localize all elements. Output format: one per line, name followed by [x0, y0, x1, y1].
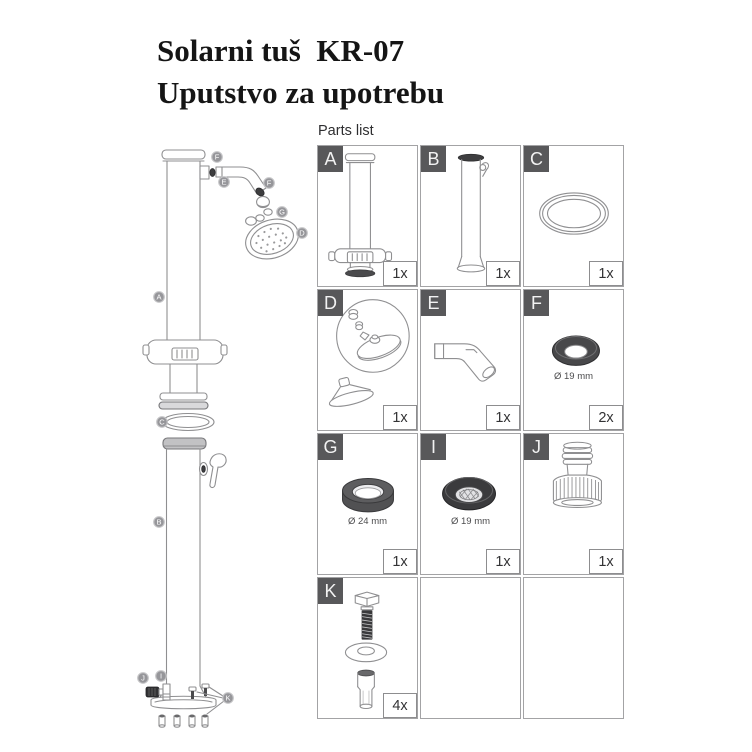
- svg-text:F: F: [267, 179, 272, 188]
- diagram-collar-nut: [143, 340, 227, 364]
- svg-text:E: E: [221, 178, 226, 187]
- part-qty: 1x: [383, 405, 417, 430]
- callout-g: G: [277, 207, 288, 218]
- part-tag: C: [524, 146, 549, 172]
- part-tag: K: [318, 578, 343, 604]
- callout-i: I: [156, 671, 167, 682]
- title-line-2: Uputstvo za upotrebu: [157, 75, 444, 110]
- svg-text:C: C: [159, 418, 165, 427]
- part-qty: 1x: [589, 261, 623, 286]
- svg-text:A: A: [156, 293, 161, 302]
- part-cell-e: E 1x: [420, 289, 521, 431]
- part-tag: A: [318, 146, 343, 172]
- part-cell-j: J 1x: [523, 433, 624, 575]
- svg-text:J: J: [141, 674, 145, 683]
- diagram-shower-head: [240, 213, 303, 266]
- svg-text:F: F: [215, 153, 220, 162]
- diagram-connector-stack: [256, 196, 272, 221]
- part-tag: I: [421, 434, 446, 460]
- part-cell-a: A 1x: [317, 145, 418, 287]
- part-cell-b: B 1x: [420, 145, 521, 287]
- part-qty: 4x: [383, 693, 417, 718]
- diagram-tube-a-bottom: [159, 364, 208, 409]
- parts-list-heading: Parts list: [318, 123, 374, 139]
- svg-text:B: B: [156, 518, 161, 527]
- part-tag: G: [318, 434, 343, 460]
- diagram-anchors: [159, 715, 208, 728]
- svg-text:K: K: [225, 694, 230, 703]
- part-cell-c: C 1x: [523, 145, 624, 287]
- part-cell-k: K: [317, 577, 418, 719]
- diagram-o-ring: [162, 414, 214, 431]
- empty-cell: [420, 577, 521, 719]
- exploded-diagram: F E F G D A C B J I K: [135, 146, 320, 746]
- part-tag: E: [421, 290, 446, 316]
- part-dimension: Ø 19 mm: [524, 371, 623, 382]
- part-dimension: Ø 19 mm: [421, 516, 520, 527]
- part-qty: 1x: [486, 405, 520, 430]
- callout-e: E: [219, 177, 230, 188]
- page-title: Solarni tuš KR-07Uputstvo za upotrebu: [157, 30, 444, 114]
- callout-a: A: [154, 292, 165, 303]
- part-qty: 1x: [486, 549, 520, 574]
- part-tag: B: [421, 146, 446, 172]
- callout-f1: F: [212, 152, 223, 163]
- part-tag: D: [318, 290, 343, 316]
- part-tag: F: [524, 290, 549, 316]
- part-qty: 1x: [486, 261, 520, 286]
- part-cell-g: G Ø 24 mm 1x: [317, 433, 418, 575]
- diagram-base: [146, 684, 224, 727]
- diagram-tube-a: [162, 150, 215, 340]
- callout-b: B: [154, 517, 165, 528]
- parts-grid: A 1x B: [317, 145, 624, 719]
- part-qty: 1x: [589, 549, 623, 574]
- part-cell-f: F Ø 19 mm 2x: [523, 289, 624, 431]
- svg-text:D: D: [299, 229, 305, 238]
- svg-text:G: G: [279, 208, 285, 217]
- part-cell-i: I Ø 19 mm 1x: [420, 433, 521, 575]
- part-dimension: Ø 24 mm: [318, 516, 417, 527]
- svg-text:I: I: [160, 672, 162, 681]
- empty-cell: [523, 577, 624, 719]
- callout-k: K: [223, 693, 234, 704]
- diagram-tube-b: [163, 438, 226, 686]
- part-qty: 1x: [383, 549, 417, 574]
- title-line-1: Solarni tuš KR-07: [157, 33, 404, 68]
- callout-c: C: [157, 417, 168, 428]
- part-qty: 1x: [383, 261, 417, 286]
- part-tag: J: [524, 434, 549, 460]
- callout-f2: F: [264, 178, 275, 189]
- part-cell-d: D 1x: [317, 289, 418, 431]
- part-qty: 2x: [589, 405, 623, 430]
- callout-d: D: [297, 228, 308, 239]
- manual-page: Solarni tuš KR-07Uputstvo za upotrebu Pa…: [0, 0, 752, 752]
- callout-j: J: [138, 673, 149, 684]
